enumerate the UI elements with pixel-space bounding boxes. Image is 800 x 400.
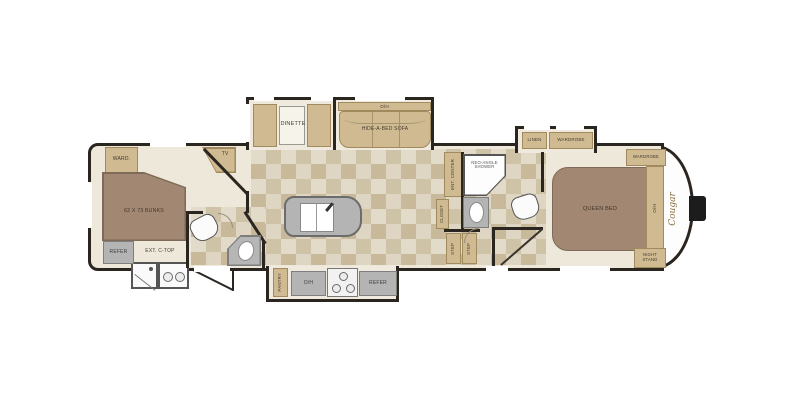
step-label: STEP bbox=[467, 243, 472, 255]
night-stand-label: NIGHT STAND bbox=[643, 253, 658, 262]
burner bbox=[339, 272, 348, 281]
queen-bed: QUEEN BED bbox=[552, 167, 648, 251]
vanity-basin bbox=[469, 202, 484, 223]
window bbox=[486, 266, 508, 271]
bedroom-overhead-label: O/H bbox=[652, 204, 657, 213]
floorplan: Cougar DINETTE O/H HIDE-A-BED SOFA LINEN… bbox=[0, 0, 800, 400]
closet-label: CLOSET bbox=[440, 205, 445, 223]
step-label: STEP bbox=[451, 243, 456, 255]
queen-bed-label: QUEEN BED bbox=[583, 206, 617, 212]
pantry-label: PANTRY bbox=[278, 273, 283, 292]
burner bbox=[163, 272, 173, 282]
burner bbox=[346, 284, 355, 293]
wall bbox=[492, 227, 543, 230]
window bbox=[254, 96, 274, 101]
wall bbox=[186, 211, 189, 268]
sofa-overhead-label: O/H bbox=[380, 104, 389, 109]
hide-a-bed-sofa: HIDE-A-BED SOFA bbox=[339, 111, 431, 148]
window bbox=[87, 182, 92, 228]
linen-cabinet: LINEN bbox=[522, 132, 547, 149]
kitchen-island bbox=[284, 196, 362, 237]
wall bbox=[333, 100, 336, 150]
window bbox=[560, 266, 610, 271]
kitchen-refer-label: REFER bbox=[369, 281, 387, 287]
bedroom-wardrobe-label: WARDROBE bbox=[633, 155, 659, 160]
wall bbox=[187, 211, 203, 214]
bedroom-wardrobe: WARDROBE bbox=[626, 149, 666, 166]
linen-wardrobe-slide: LINEN WARDROBE bbox=[515, 126, 597, 153]
kitchen-overhead: O/H bbox=[291, 271, 326, 296]
wardrobe-slide-label: WARDROBE bbox=[557, 138, 584, 143]
exterior-sink bbox=[131, 262, 158, 289]
wall bbox=[541, 152, 544, 192]
bunk-refer-label: REFER bbox=[110, 250, 128, 256]
closet-cabinet: CLOSET bbox=[436, 199, 449, 229]
faucet-icon bbox=[149, 267, 153, 271]
kitchen-overhead-label: O/H bbox=[304, 281, 314, 287]
exterior-kitchen bbox=[131, 262, 189, 289]
step-1: STEP bbox=[446, 233, 461, 264]
linen-label: LINEN bbox=[528, 138, 542, 143]
ent-center-label: ENT. CENTER bbox=[451, 159, 456, 190]
sofa-overhead-cabinet: O/H bbox=[338, 102, 431, 111]
ward-label: WARD. bbox=[113, 157, 130, 163]
wall bbox=[262, 240, 265, 268]
window bbox=[355, 96, 405, 101]
sofa-label: HIDE-A-BED SOFA bbox=[362, 127, 409, 133]
dinette-label: DINETTE bbox=[257, 121, 329, 127]
tv-label: TV bbox=[222, 152, 229, 158]
entry-door bbox=[192, 269, 234, 291]
burner bbox=[175, 272, 185, 282]
window bbox=[556, 125, 584, 130]
night-stand: NIGHT STAND bbox=[634, 248, 666, 268]
exterior-sink-line bbox=[134, 274, 155, 291]
exterior-cooktop bbox=[158, 262, 189, 289]
window bbox=[524, 125, 550, 130]
hitch-pin bbox=[689, 196, 706, 221]
kitchen-refrigerator: REFER bbox=[359, 271, 397, 296]
entry-door-opening bbox=[194, 266, 230, 272]
window bbox=[150, 142, 186, 147]
range-stove bbox=[327, 268, 358, 297]
wall bbox=[492, 227, 495, 268]
bedroom-overhead: O/H bbox=[646, 166, 664, 251]
wardrobe-slide-cabinet: WARDROBE bbox=[549, 132, 593, 149]
bunk-bed-face: 62 X 73 BUNKS bbox=[104, 174, 185, 240]
dinette-sofa-slide: DINETTE O/H HIDE-A-BED SOFA bbox=[246, 97, 434, 150]
burner bbox=[332, 284, 341, 293]
shower-label: NEO-ANGLE SHOWER bbox=[465, 161, 505, 170]
window bbox=[245, 104, 250, 142]
window bbox=[311, 96, 333, 101]
ward-cabinet: WARD. bbox=[105, 147, 138, 173]
wall bbox=[246, 191, 249, 213]
sofa-back-line bbox=[344, 114, 426, 124]
ent-center-cabinet: ENT. CENTER bbox=[444, 152, 462, 197]
kitchen-slide: PANTRY O/H REFER bbox=[266, 266, 399, 302]
bunkroom-refrigerator: REFER bbox=[103, 241, 134, 264]
bunks-label: 62 X 73 BUNKS bbox=[124, 209, 164, 215]
pantry-cabinet: PANTRY bbox=[273, 268, 288, 297]
bath-vanity bbox=[463, 197, 489, 228]
ext-cooktop-label: EXT. C-TOP bbox=[136, 249, 184, 255]
